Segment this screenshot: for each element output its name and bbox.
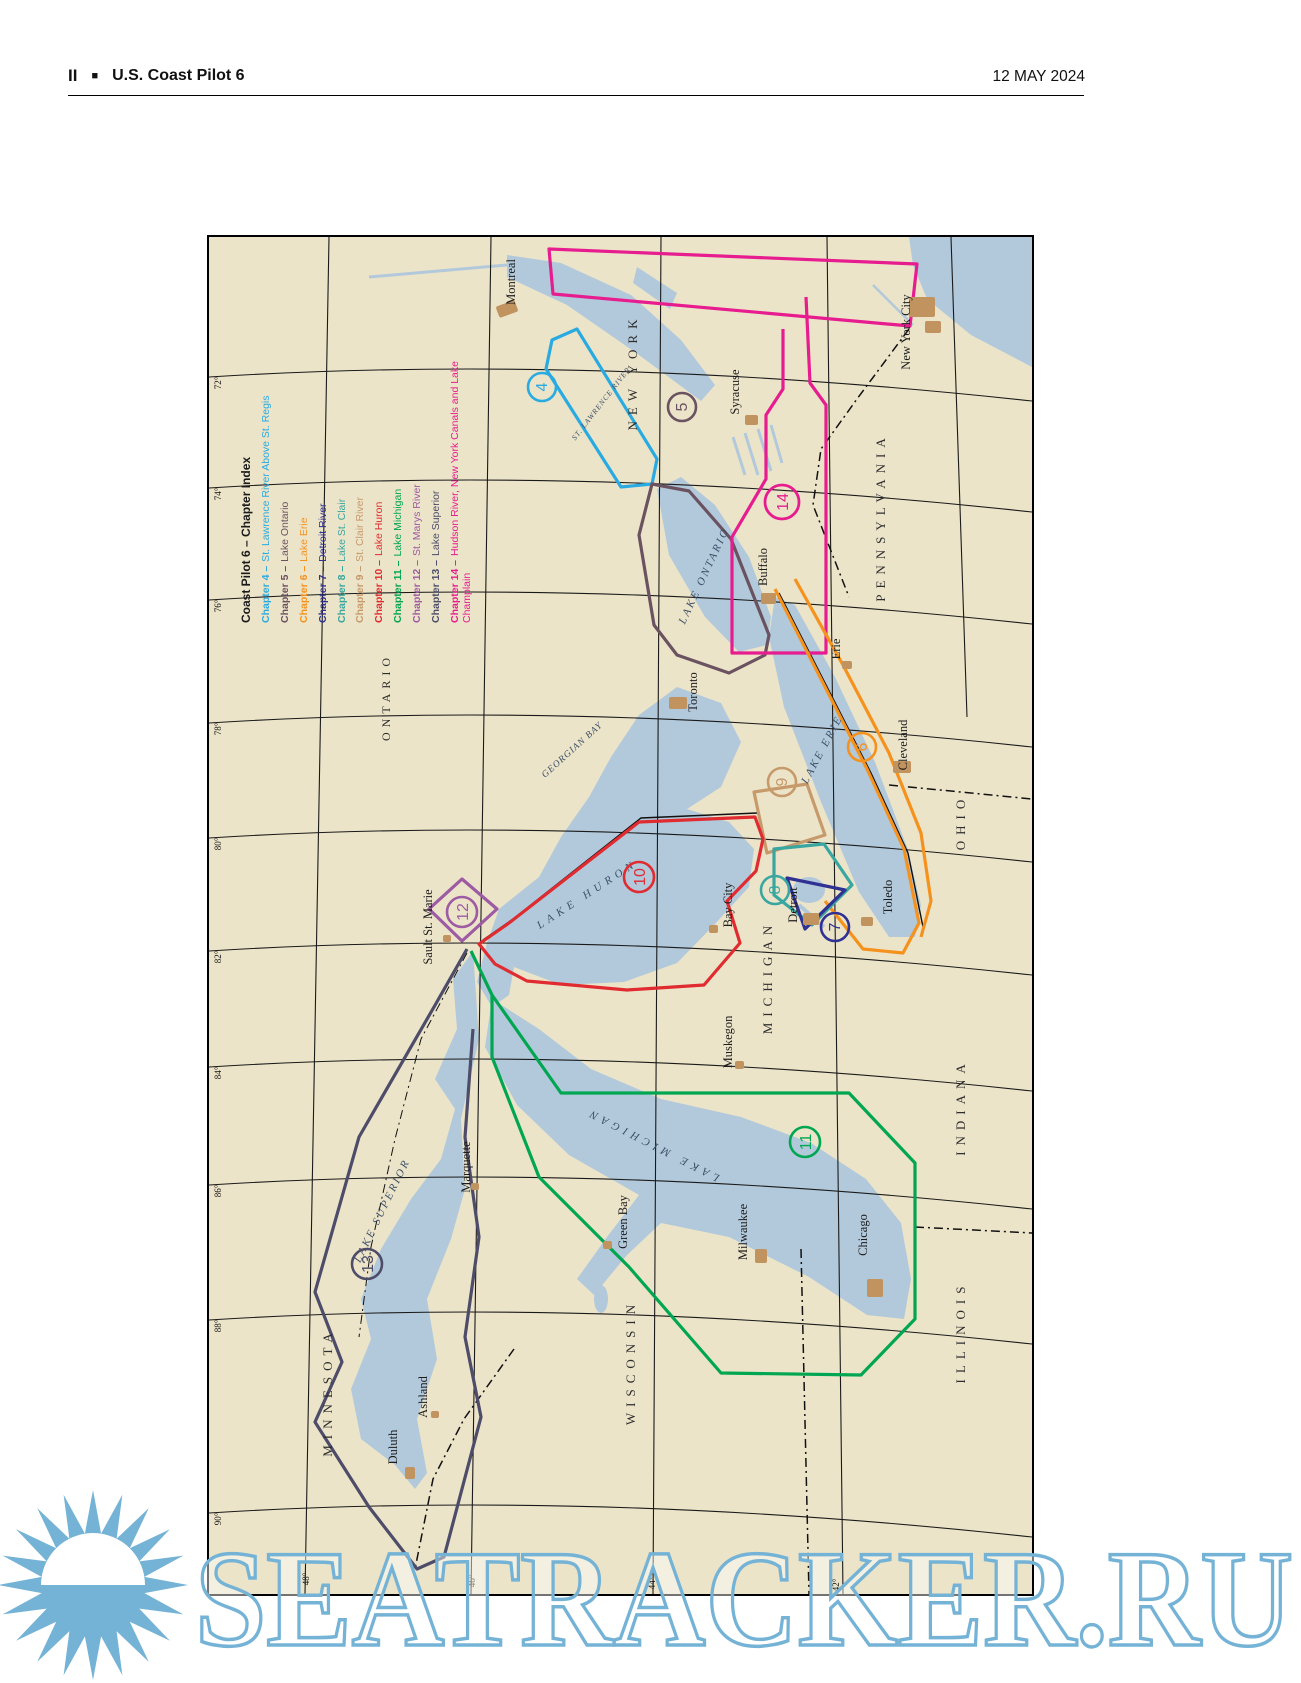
longitude-tick-label: 82° (213, 950, 223, 963)
city-label-erie: Erie (829, 638, 843, 659)
chapter-marker-number: 5 (674, 402, 691, 411)
latitude-tick-label: 46° (467, 1574, 477, 1587)
longitude-tick-label: 80° (213, 837, 223, 850)
longitude-tick-label: 74° (213, 487, 223, 500)
sun-rays (0, 1490, 188, 1680)
city-label-marquette: Marquette (459, 1141, 473, 1193)
longitude-tick-label: 84° (213, 1066, 223, 1079)
city-label-milwaukee: Milwaukee (736, 1203, 750, 1260)
state-label-ohio: OHIO (953, 794, 968, 851)
longitude-tick-label: 76° (213, 599, 223, 612)
chapter-marker-number: 12 (455, 903, 472, 921)
state-label-minnesota: MINNESOTA (320, 1327, 335, 1457)
city-label-toledo: Toledo (881, 880, 895, 915)
square-bullet-icon: ■ (91, 71, 98, 82)
chapter-marker-number: 14 (775, 493, 792, 511)
city-label-buffalo: Buffalo (756, 548, 770, 586)
city-label-green-bay: Green Bay (616, 1194, 630, 1249)
province-label-ontario: ONTARIO (379, 653, 393, 741)
latitude-tick-label: 44° (647, 1576, 657, 1589)
city-label-bay-city: Bay City (721, 882, 735, 928)
latitude-tick-label: 42° (831, 1578, 841, 1591)
city-label-chicago: Chicago (856, 1214, 870, 1256)
longitude-tick-label: 86° (213, 1184, 223, 1197)
chapter-marker-number: 11 (798, 1134, 815, 1151)
sun-dome (41, 1533, 145, 1585)
longitude-tick-label: 90° (213, 1512, 223, 1525)
city-label-duluth: Duluth (386, 1429, 400, 1464)
city-label-ashland: Ashland (416, 1375, 430, 1417)
chapter-index-map: NEW YORK PENNSYLVANIA OHIO MICHIGAN INDI… (207, 235, 1034, 1596)
chapter-marker-number: 6 (854, 742, 871, 751)
chapter-marker-number: 9 (774, 777, 791, 786)
city-label-cleveland: Cleveland (896, 719, 910, 770)
state-label-pennsylvania: PENNSYLVANIA (873, 432, 888, 602)
state-label-michigan: MICHIGAN (760, 920, 775, 1034)
city-label-sault-st-marie: Sault St. Marie (421, 889, 435, 965)
state-label-illinois: ILLINOIS (953, 1281, 968, 1384)
page-header: II ■ U.S. Coast Pilot 6 12 MAY 2024 (68, 66, 1084, 90)
longitude-tick-label: 72° (213, 376, 223, 389)
chapter-marker-number: 8 (767, 885, 784, 894)
city-label-new-york-city: New York City (899, 294, 913, 370)
latitude-tick-label: 48° (301, 1572, 311, 1585)
header-left: II ■ U.S. Coast Pilot 6 (68, 66, 245, 86)
map-svg: NEW YORK PENNSYLVANIA OHIO MICHIGAN INDI… (209, 237, 1032, 1594)
header-rule (68, 95, 1084, 96)
lake-winnebago (594, 1285, 608, 1313)
lake-simcoe (665, 748, 689, 766)
state-label-indiana: INDIANA (953, 1058, 968, 1156)
city-label-syracuse: Syracuse (728, 369, 742, 415)
city-label-montreal: Montreal (504, 259, 518, 305)
longitude-tick-label: 78° (213, 722, 223, 735)
sun-logo-icon (0, 1490, 188, 1680)
publication-date: 12 MAY 2024 (993, 68, 1086, 86)
longitude-tick-label: 88° (213, 1319, 223, 1332)
city-label-toronto: Toronto (686, 672, 700, 711)
chapter-marker-number: 13 (360, 1255, 377, 1273)
state-label-wisconsin: WISCONSIN (623, 1299, 638, 1425)
chapter-marker-number: 10 (632, 868, 649, 886)
chapter-marker-number: 7 (827, 922, 844, 931)
page-number: II (68, 66, 77, 86)
document-page: II ■ U.S. Coast Pilot 6 12 MAY 2024 (0, 0, 1301, 1683)
chapter-marker-number: 4 (534, 382, 551, 391)
city-label-muskegon: Muskegon (721, 1015, 735, 1069)
document-title: U.S. Coast Pilot 6 (112, 67, 244, 85)
